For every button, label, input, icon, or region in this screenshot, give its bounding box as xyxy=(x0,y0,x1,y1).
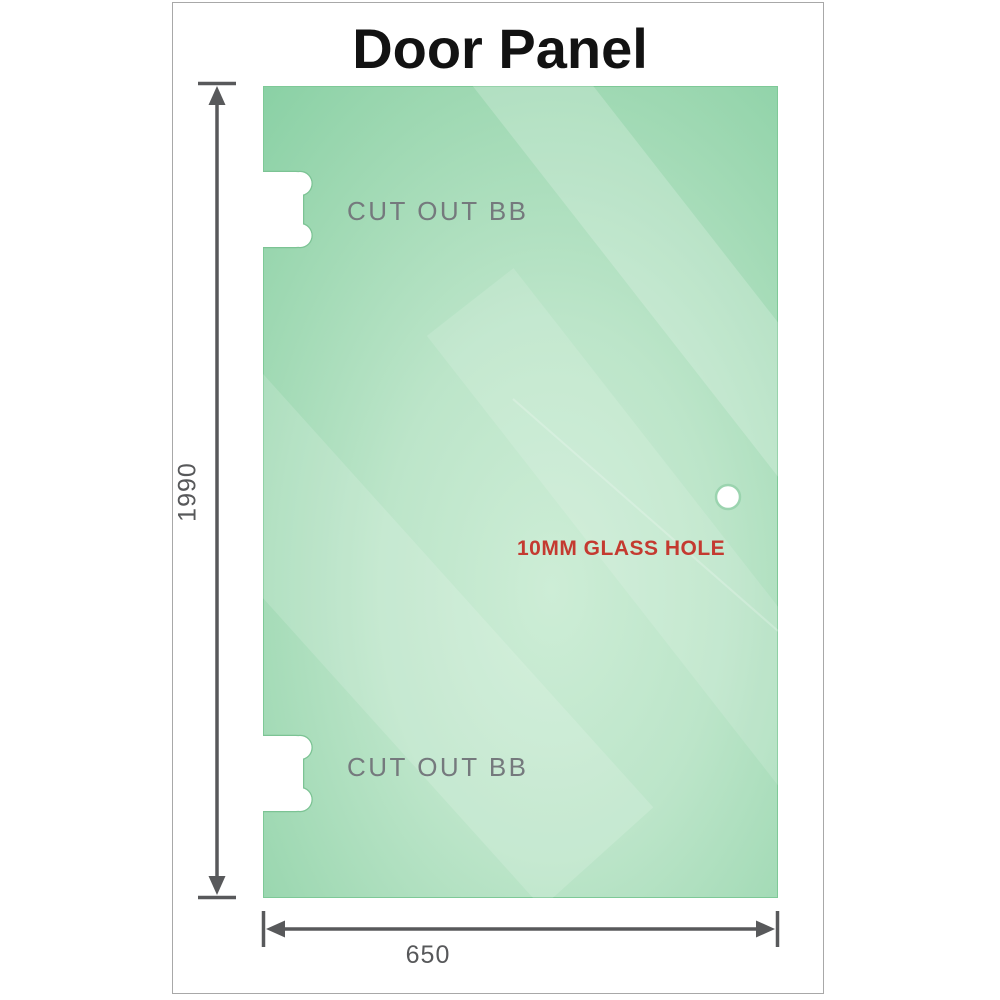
glass-hole-label: 10MM GLASS HOLE xyxy=(517,537,725,561)
dimension-arrows xyxy=(0,0,1000,1000)
width-dimension-arrow xyxy=(264,911,778,947)
cutout-label-bottom: CUT OUT BB xyxy=(347,752,529,783)
height-dimension-value: 1990 xyxy=(174,462,203,522)
door-panel-diagram: Door Panel xyxy=(0,0,1000,1000)
cutout-label-top: CUT OUT BB xyxy=(347,196,529,227)
width-dimension-value: 650 xyxy=(406,941,451,970)
height-dimension-arrow xyxy=(198,84,236,898)
